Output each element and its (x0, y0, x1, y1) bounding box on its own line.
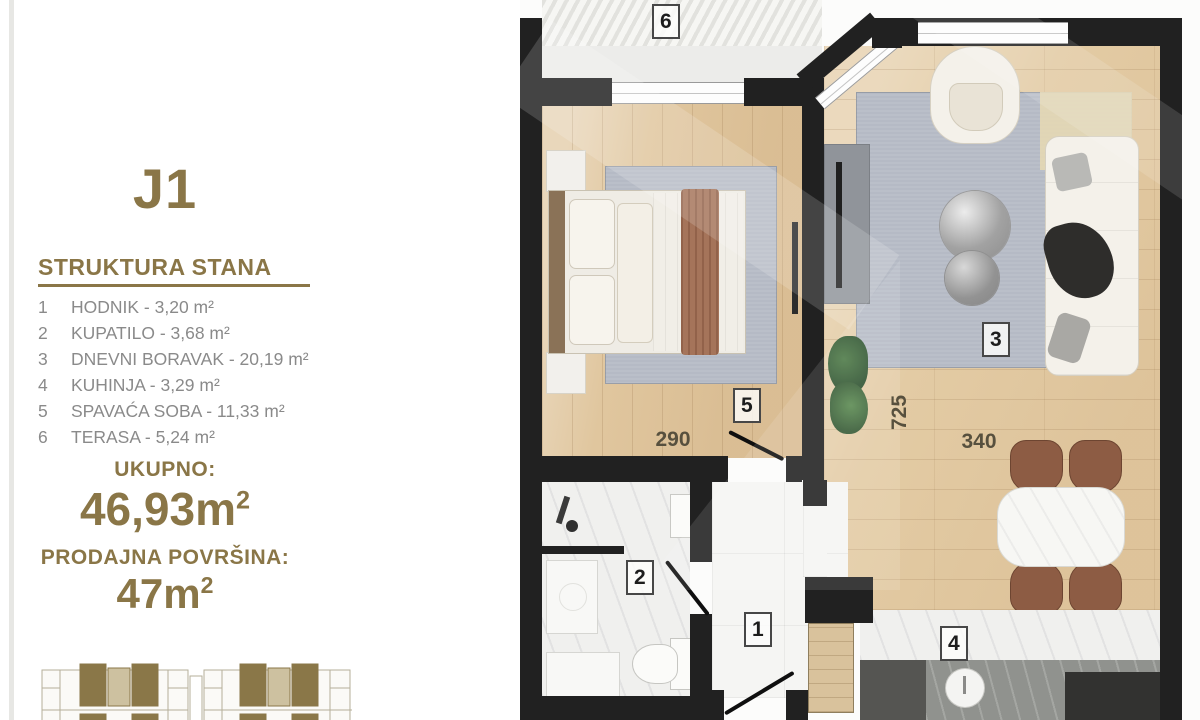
dimension-living-width: 340 (948, 430, 1010, 454)
floor-plan-page: J1 STRUKTURA STANA 1 HODNIK - 3,20 m² 2 … (0, 0, 1200, 720)
hallway-passage-floor (803, 506, 827, 577)
wall-bath-right-a (690, 482, 712, 562)
room-label: TERASA - 5,24 m² (71, 427, 215, 448)
room-label: KUHINJA - 3,29 m² (71, 375, 220, 396)
plant (826, 336, 870, 436)
washer-door (559, 583, 587, 611)
room-list: 1 HODNIK - 3,20 m² 2 KUPATILO - 3,68 m² … (38, 294, 338, 450)
room-list-item: 3 DNEVNI BORAVAK - 20,19 m² (38, 346, 338, 372)
bedroom-window (612, 82, 744, 104)
dining-chair (1069, 440, 1122, 493)
dining-table (997, 487, 1125, 567)
total-label: UKUPNO: (0, 458, 330, 482)
floor-plan: 6 5 3 2 1 4 290 725 340 (520, 0, 1200, 720)
kitchen-counter-dark (860, 660, 926, 720)
shower-head (566, 520, 578, 532)
wall-hall-living-stub (803, 480, 827, 506)
building-key-plan (40, 658, 352, 720)
wall-bottom-left (520, 696, 710, 720)
room-label: SPAVAĆA SOBA - 11,33 m² (71, 401, 285, 422)
building-key-plan-drawing (40, 658, 352, 720)
sofa-throw (1038, 214, 1121, 307)
bedroom-label: 5 (733, 388, 761, 423)
bed-pillow (617, 203, 653, 343)
room-list-item: 4 KUHINJA - 3,29 m² (38, 372, 338, 398)
wall-bedroom-living (802, 78, 824, 480)
total-area: 46,93m2 (0, 482, 330, 536)
room-list-item: 6 TERASA - 5,24 m² (38, 424, 338, 450)
wall-bedroom-top-b (744, 78, 804, 106)
sale-area-label: PRODAJNA POVRŠINA: (0, 546, 330, 570)
dimension-living-length: 725 (888, 368, 912, 430)
dining-chair (1010, 440, 1063, 493)
tv-cabinet (824, 144, 870, 304)
structure-underline (38, 284, 310, 287)
terrace-label: 6 (652, 4, 680, 39)
armchair-cushion (949, 83, 1003, 131)
armchair (930, 46, 1020, 144)
info-sidebar: J1 STRUKTURA STANA 1 HODNIK - 3,20 m² 2 … (0, 0, 520, 720)
bed-throw-blanket (681, 189, 719, 355)
sofa (1045, 136, 1139, 376)
entry-door-post (710, 690, 724, 720)
washing-machine (546, 560, 598, 634)
wall-bath-right-b (690, 614, 712, 700)
sofa-pillow (1051, 152, 1093, 193)
kitchen-counter-white (860, 610, 1160, 660)
bed-pillow (569, 199, 615, 269)
living-tv (836, 162, 842, 288)
unit-title: J1 (0, 156, 330, 221)
room-number: 3 (38, 349, 71, 370)
total-area-sup: 2 (236, 487, 250, 515)
room-label: DNEVNI BORAVAK - 20,19 m² (71, 349, 309, 370)
plant-foliage (830, 382, 868, 434)
room-number: 2 (38, 323, 71, 344)
room-list-item: 1 HODNIK - 3,20 m² (38, 294, 338, 320)
sale-area: 47m2 (0, 570, 330, 618)
dining-chair (1069, 561, 1122, 614)
sale-area-value: 47m (117, 570, 201, 617)
room-list-item: 5 SPAVAĆA SOBA - 11,33 m² (38, 398, 338, 424)
structure-heading: STRUKTURA STANA (38, 254, 318, 281)
kitchen-label: 4 (940, 626, 968, 661)
room-number: 5 (38, 401, 71, 422)
wall-right (1160, 18, 1182, 720)
bathroom-label: 2 (626, 560, 654, 595)
hallway-closet (808, 623, 854, 713)
entry-door-post (786, 690, 808, 720)
sale-area-sup: 2 (201, 572, 214, 598)
sofa-pillow (1046, 311, 1093, 365)
dimension-bedroom-width: 290 (638, 428, 708, 452)
wall-hall-kitchen (805, 577, 873, 623)
kitchen-appliance (1065, 672, 1160, 720)
bed-pillow (569, 275, 615, 345)
wall-left (520, 18, 542, 720)
hallway-label: 1 (744, 612, 772, 647)
room-number: 4 (38, 375, 71, 396)
room-list-item: 2 KUPATILO - 3,68 m² (38, 320, 338, 346)
room-label: KUPATILO - 3,68 m² (71, 323, 230, 344)
nightstand (546, 352, 586, 394)
living-window (918, 22, 1068, 44)
room-number: 1 (38, 297, 71, 318)
terrace-awning (542, 0, 822, 46)
room-number: 6 (38, 427, 71, 448)
bed (548, 190, 746, 354)
dining-chair (1010, 561, 1063, 614)
wall-bedroom-bottom-stub (786, 456, 802, 482)
wall-bedroom-bottom (542, 456, 728, 482)
toilet-bowl (632, 644, 678, 684)
kitchen-faucet (963, 676, 966, 694)
wall-bedroom-top-a (542, 78, 612, 106)
living-room-label: 3 (982, 322, 1010, 357)
room-label: HODNIK - 3,20 m² (71, 297, 214, 318)
bathroom-cabinet (546, 652, 620, 698)
shower-partition-wall (542, 546, 624, 554)
bedroom-tv (792, 222, 798, 314)
total-area-value: 46,93m (80, 483, 236, 535)
nightstand (546, 150, 586, 192)
bed-headboard (549, 191, 565, 353)
coffee-table-small (945, 251, 999, 305)
